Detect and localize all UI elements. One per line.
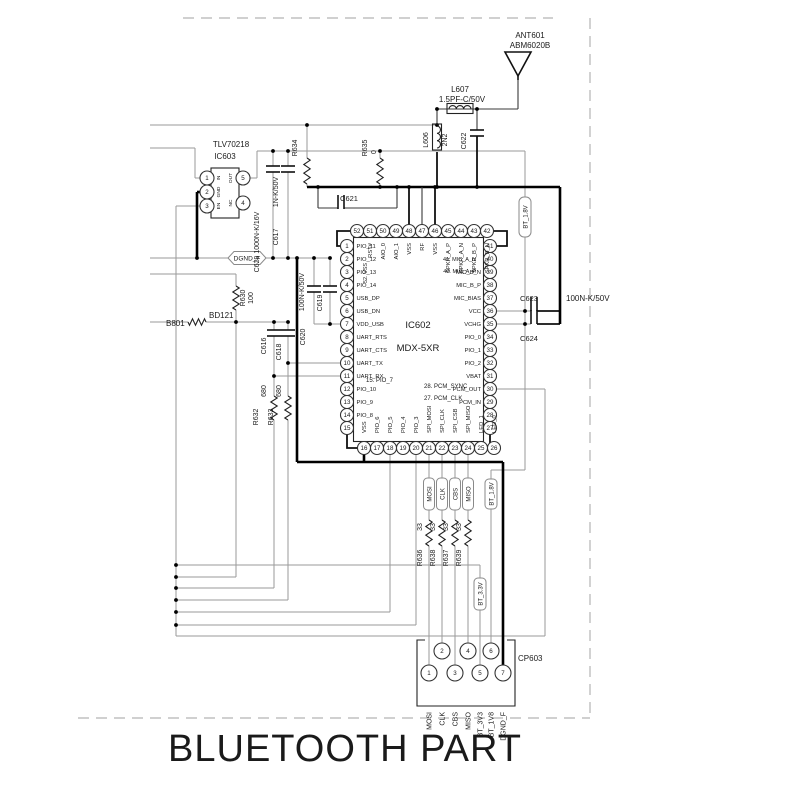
bt18-top-label: BT_1.8V <box>523 205 529 228</box>
c629-label: C629 1000N-K/16V <box>254 211 261 272</box>
pin-number: 22 <box>439 445 446 452</box>
bt18-bottom-flag-label: BT_1.8V <box>489 482 495 505</box>
r632-value: 680 <box>261 385 268 397</box>
junction-dot <box>174 575 178 579</box>
pin-number: 32 <box>487 360 494 367</box>
ic603-pin-name: OUT <box>228 173 234 183</box>
pin-number: 29 <box>487 399 494 406</box>
pin-number: 38 <box>487 282 494 289</box>
ic603-part: TLV70218 <box>213 140 250 149</box>
pin-number: 15 <box>344 425 351 432</box>
sheet-border <box>78 18 590 718</box>
junction-dot <box>328 322 332 326</box>
ic603-ref: IC603 <box>214 152 236 161</box>
ic602-pin-name: SPI_MOSI <box>427 405 433 433</box>
junction-dot <box>407 185 411 189</box>
pin-number: 5 <box>241 175 245 182</box>
ic602-note-52: 52. VSS <box>363 263 369 284</box>
pin-number: 2 <box>440 648 444 655</box>
ic602-pin-name: PIO_12 <box>357 257 377 263</box>
pin-number: 6 <box>345 308 349 315</box>
ic602-pin-name: VDD_USB <box>357 322 385 328</box>
ic602-pin-name: UART_CTS <box>357 348 388 354</box>
pin-number: 7 <box>501 670 505 677</box>
pin-number: 37 <box>487 295 494 302</box>
ic602-pin-name: SPI_CSB <box>453 408 459 433</box>
pin-number: 4 <box>241 200 245 207</box>
inductor-l606 <box>437 126 440 148</box>
c617-value: 1N-K/50V <box>273 177 280 208</box>
pin-number: 13 <box>344 399 351 406</box>
junction-dot <box>174 563 178 567</box>
spi-res-ref: R638 <box>430 550 437 567</box>
c619-ref: C619 <box>317 295 324 312</box>
pin-number: 48 <box>406 228 413 235</box>
c624-ref: C624 <box>520 334 538 343</box>
ic602-pin-name: PIO_4 <box>401 416 407 433</box>
junction-dot <box>286 256 290 260</box>
ic602-pin-name: RF <box>420 243 426 251</box>
junction-dot <box>435 107 439 111</box>
junction-dot <box>174 598 178 602</box>
resistor-r633 <box>285 396 291 420</box>
spi-res-value: 33 <box>417 523 424 531</box>
junction-dot <box>271 149 275 153</box>
l606-ref: L606 <box>423 132 430 148</box>
pin-number: 43 <box>471 228 478 235</box>
pin-number: 36 <box>487 308 494 315</box>
ant601-part: ABM6020B <box>510 41 550 50</box>
ic602-note-27: 27. PCM_CLK <box>424 396 462 402</box>
ic602-note-40: 40. MIC_A_P <box>443 269 476 275</box>
pin-number: 3 <box>205 203 209 210</box>
ic602-pin-name: AIO_0 <box>381 243 387 259</box>
junction-dot <box>523 309 527 313</box>
ferrite-b801 <box>188 319 206 325</box>
left-caps-value: 100N-K/50V <box>299 273 306 311</box>
pin-number: 26 <box>491 445 498 452</box>
ic602-pin-name: LED_1 <box>479 415 485 433</box>
pin-number: 46 <box>432 228 439 235</box>
ic603-body <box>211 168 239 218</box>
pin-number: 5 <box>478 670 482 677</box>
pin-number: 10 <box>344 360 351 367</box>
pin-number: 42 <box>484 228 491 235</box>
pin-number: 52 <box>354 228 361 235</box>
ic602-pin-name: PIO_11 <box>357 244 376 250</box>
r633-value: 680 <box>276 385 283 397</box>
r633-ref: R633 <box>268 409 275 426</box>
pin-number: 8 <box>345 334 349 341</box>
mosi-flag-label: MOSI <box>427 486 433 502</box>
junction-dot <box>272 320 276 324</box>
ic602-pin-name: UART_RTS <box>357 335 388 341</box>
ic602-pin-name: PIO_0 <box>465 335 481 341</box>
resistor-spi-3 <box>465 520 471 546</box>
schematic-page: DGND_FBT_1.8VBT_1.8VBT_3.3VMOSICLKCBSMIS… <box>0 0 800 800</box>
pin-number: 5 <box>345 295 349 302</box>
ic602-ref: IC602 <box>405 320 430 331</box>
ic602-pin-name: LED_0 <box>492 415 498 433</box>
ic602-note-28: 28. PCM_SYNC <box>424 384 468 390</box>
pin-number: 33 <box>487 347 494 354</box>
c617-ref: C617 <box>273 229 280 246</box>
r634-ref: R634 <box>292 140 299 157</box>
spi-res-value: 33 <box>456 523 463 531</box>
ic602-pin-name: VBAT <box>466 374 481 380</box>
ic602-pin-name: VSS <box>362 421 368 433</box>
pin-number: 3 <box>453 670 457 677</box>
pin-number: 47 <box>419 228 426 235</box>
pin-number: 16 <box>361 445 368 452</box>
pin-number: 31 <box>487 373 494 380</box>
junction-dot <box>395 185 399 189</box>
pin-number: 1 <box>345 243 349 250</box>
junction-dot <box>328 256 332 260</box>
ic602-pin-name: VCHG <box>464 322 481 328</box>
ic602-pin-name: AIO_1 <box>394 243 400 259</box>
spi-res-ref: R637 <box>443 550 450 567</box>
pin-number: 45 <box>445 228 452 235</box>
ic602-pin-name: USB_DP <box>357 296 380 302</box>
junction-dot <box>174 610 178 614</box>
junction-dot <box>435 185 439 189</box>
junction-dot <box>475 185 479 189</box>
antenna-symbol <box>505 52 531 76</box>
ic603-pin-name: GND <box>216 186 222 197</box>
ic602-pin-name: PIO_1 <box>465 348 481 354</box>
spi-res-ref: R639 <box>456 550 463 567</box>
ic602-note-15: 15. PIO_7 <box>366 378 394 384</box>
r635-value: 0 <box>371 150 378 154</box>
pin-number: 11 <box>344 373 351 380</box>
ant601-ref: ANT601 <box>515 31 545 40</box>
junction-dot <box>378 149 382 153</box>
pin-number: 19 <box>400 445 407 452</box>
pin-number: 50 <box>380 228 387 235</box>
pin-number: 51 <box>367 228 374 235</box>
ic602-pin-name: VSS <box>407 243 413 255</box>
pin-number: 20 <box>413 445 420 452</box>
junction-dot <box>295 256 299 260</box>
pin-number: 3 <box>345 269 349 276</box>
pin-number: 21 <box>426 445 433 452</box>
junction-dot <box>305 123 309 127</box>
pin-number: 4 <box>345 282 349 289</box>
ic602-pin-name: PIO_2 <box>465 361 481 367</box>
c622-ref: C622 <box>461 133 468 150</box>
pin-number: 4 <box>466 648 470 655</box>
r630-value: 100 <box>248 292 255 304</box>
miso-flag-label: MISO <box>466 486 472 502</box>
ic602-pin-name: VCC <box>469 309 481 315</box>
pin-number: 23 <box>452 445 459 452</box>
ic602-pin-name: SPKR_B_N <box>485 243 491 273</box>
ic602-note-41: 41. MIC_A_N <box>443 257 476 263</box>
pin-number: 2 <box>205 189 209 196</box>
b801-ref: B801 <box>166 319 185 328</box>
labels: RST#AIO_0AIO_1VSSRFVSSSPKR_A_PSPKR_A_NSP… <box>166 31 610 741</box>
junction-dot <box>523 322 527 326</box>
ic602-part: MDX-5XR <box>397 343 440 354</box>
l607-ref: L607 <box>451 85 469 94</box>
ic602-pin-name: PIO_9 <box>357 400 373 406</box>
pin-number: 18 <box>387 445 394 452</box>
junction-dot <box>174 586 178 590</box>
r635-ref: R635 <box>362 140 369 157</box>
right-caps-value: 100N-K/50V <box>566 294 610 303</box>
junction-dot <box>286 149 290 153</box>
junction-dot <box>174 623 178 627</box>
page-title: BLUETOOTH PART <box>168 728 522 770</box>
junction-dot <box>378 185 382 189</box>
pin-number: 35 <box>487 321 494 328</box>
pin-number: 24 <box>465 445 472 452</box>
spi-res-value: 33 <box>430 523 437 531</box>
pin-number: 6 <box>489 648 493 655</box>
junction-dot <box>312 256 316 260</box>
ic602-pin-name: PIO_5 <box>388 417 394 433</box>
ic602-pin-name: MIC_BIAS <box>454 296 481 302</box>
l606-value: 2N2 <box>442 133 449 146</box>
pin-number: 1 <box>427 670 431 677</box>
pin-number: 7 <box>345 321 349 328</box>
c621-ref: C621 <box>340 194 358 203</box>
ic602-pin-name: MIC_B_P <box>456 283 481 289</box>
c620-ref: C620 <box>300 329 307 346</box>
pin-number: 49 <box>393 228 400 235</box>
junction-dot <box>316 185 320 189</box>
cbs-flag-label: CBS <box>453 488 459 500</box>
r630-ref: R630 <box>240 290 247 307</box>
ic602-pin-name: PIO_6 <box>375 417 381 433</box>
junction-dot <box>286 361 290 365</box>
cp603-ref: CP603 <box>518 654 543 663</box>
junction-dot <box>195 256 199 260</box>
ic602-pin-name: SPI_MISO <box>466 405 472 433</box>
clk-flag-label: CLK <box>440 488 446 500</box>
ic602-pin-name: VSS <box>433 243 439 255</box>
ic603-pin-name: IN <box>216 175 222 180</box>
pin-number: 25 <box>478 445 485 452</box>
spi-res-ref: R636 <box>417 550 424 567</box>
ic602-pin-name: PCM_IN <box>459 400 481 406</box>
junction-dot <box>475 107 479 111</box>
ic603-pin-name: NC <box>228 199 234 206</box>
c616-ref: C616 <box>261 338 268 355</box>
c618-ref: C618 <box>276 344 283 361</box>
ic602-pin-name: PIO_8 <box>357 413 373 419</box>
pin-number: 30 <box>487 386 494 393</box>
resistor-r635 <box>377 158 383 184</box>
spi-res-value: 33 <box>443 523 450 531</box>
junction-dot <box>271 256 275 260</box>
b801-part: BD121 <box>209 311 234 320</box>
pin-number: 44 <box>458 228 465 235</box>
l607-value: 1.5PF-C/50V <box>439 95 486 104</box>
ic602-pin-name: USB_DN <box>357 309 381 315</box>
r632-ref: R632 <box>253 409 260 426</box>
c623-ref: C623 <box>520 294 538 303</box>
ic602-pin-name: PIO_3 <box>414 417 420 433</box>
pin-number: 2 <box>345 256 349 263</box>
cp603-pin-label: CBS <box>453 712 460 727</box>
ic603-pin-name: EN <box>216 202 222 209</box>
ic602-pin-name: UART_TX <box>357 361 383 367</box>
pin-number: 14 <box>344 412 351 419</box>
resistor-r634 <box>304 158 310 184</box>
junction-dot <box>234 320 238 324</box>
pin-number: 1 <box>205 175 209 182</box>
bt33-flag-label: BT_3.3V <box>478 582 484 605</box>
resistor-r630 <box>233 286 239 310</box>
pin-number: 9 <box>345 347 349 354</box>
pin-number: 34 <box>487 334 494 341</box>
junction-dot <box>286 320 290 324</box>
pin-number: 12 <box>344 386 351 393</box>
pin-number: 17 <box>374 445 381 452</box>
junction-dot <box>272 374 276 378</box>
cp603-pin-label: CLK <box>440 712 447 726</box>
ic602-pin-name: SPI_CLK <box>440 409 446 433</box>
bluetooth-schematic: DGND_FBT_1.8VBT_1.8VBT_3.3VMOSICLKCBSMIS… <box>0 0 800 800</box>
ic602-pin-name: PIO_10 <box>357 387 377 393</box>
